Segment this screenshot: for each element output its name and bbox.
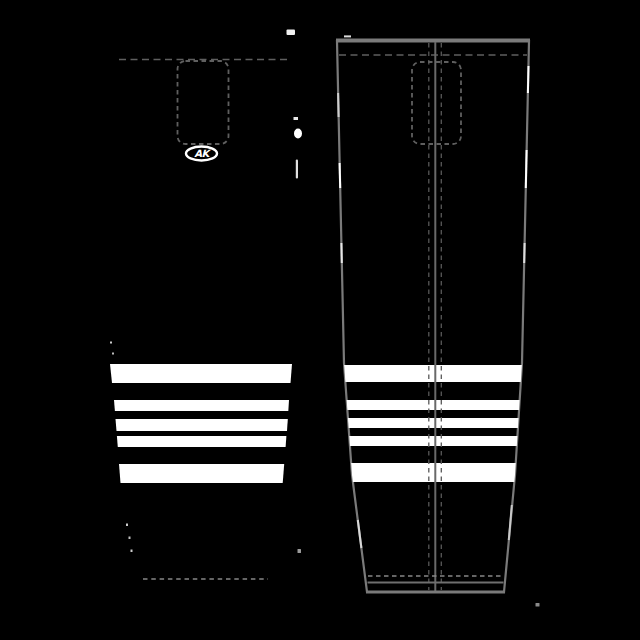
artifact-speck-3 (294, 129, 302, 139)
artifact-speck-6 (536, 603, 540, 607)
hockey-socks-product-image: AK (0, 0, 640, 640)
right-sock-edge-highlight-2 (340, 163, 341, 188)
left-sock-stripe-2 (114, 400, 289, 411)
right-sock-outline (337, 41, 529, 592)
right-sock-edge-highlight-1 (338, 93, 339, 117)
left-sock-stripe-3 (116, 419, 288, 431)
artifact-speck-5 (298, 549, 302, 553)
right-sock-stripe-4 (332, 436, 534, 446)
right-sock-template-view (332, 36, 534, 592)
right-sock-stripe-2 (332, 400, 534, 410)
artifact-speck-7 (110, 342, 112, 344)
artifact-speck-10 (129, 537, 131, 540)
right-sock-stripe-3 (332, 418, 534, 428)
left-sock-stripe-1 (110, 364, 292, 383)
artifact-speck-8 (112, 353, 114, 355)
ak-brand-logo: AK (186, 147, 217, 161)
right-sock-stripe-5 (332, 463, 534, 482)
right-sock-edge-highlight-5 (528, 66, 529, 93)
left-sock-stripe-5 (119, 464, 284, 483)
artifact-speck-2 (294, 117, 299, 120)
artifact-speck-1 (287, 30, 296, 36)
artifact-speck-4 (296, 160, 298, 179)
left-sock-stripe-4 (117, 436, 287, 447)
artifact-speck-9 (126, 524, 128, 527)
right-sock-stripe-1 (332, 365, 534, 382)
artifact-speck-11 (131, 550, 133, 553)
right-sock-edge-highlight-6 (526, 150, 527, 188)
